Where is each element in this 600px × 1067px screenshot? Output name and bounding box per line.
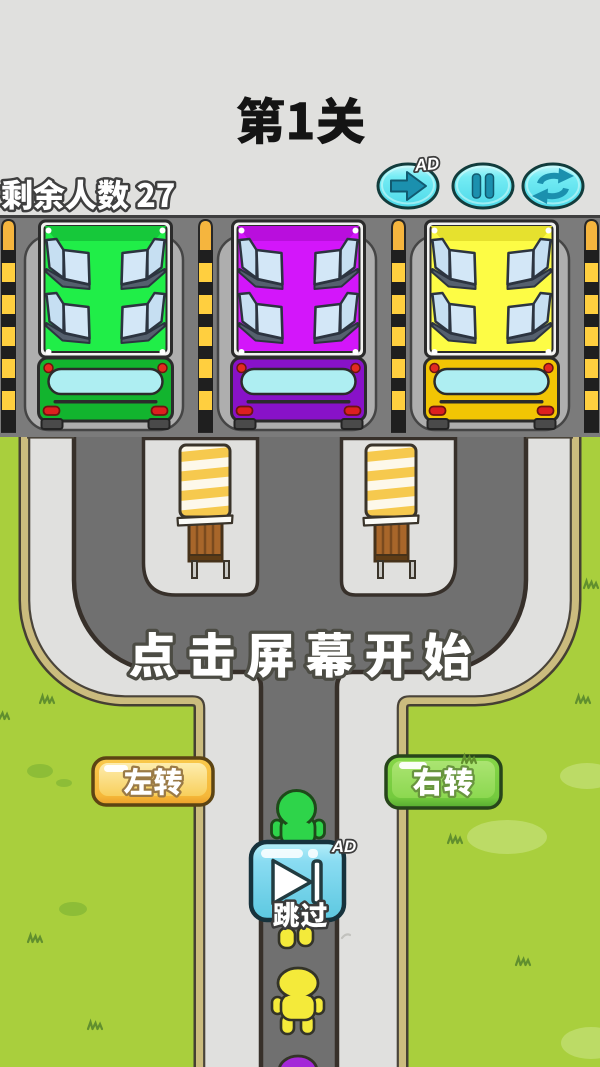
svg-text:AD: AD <box>413 154 440 176</box>
svg-text:AD: AD <box>331 837 357 856</box>
